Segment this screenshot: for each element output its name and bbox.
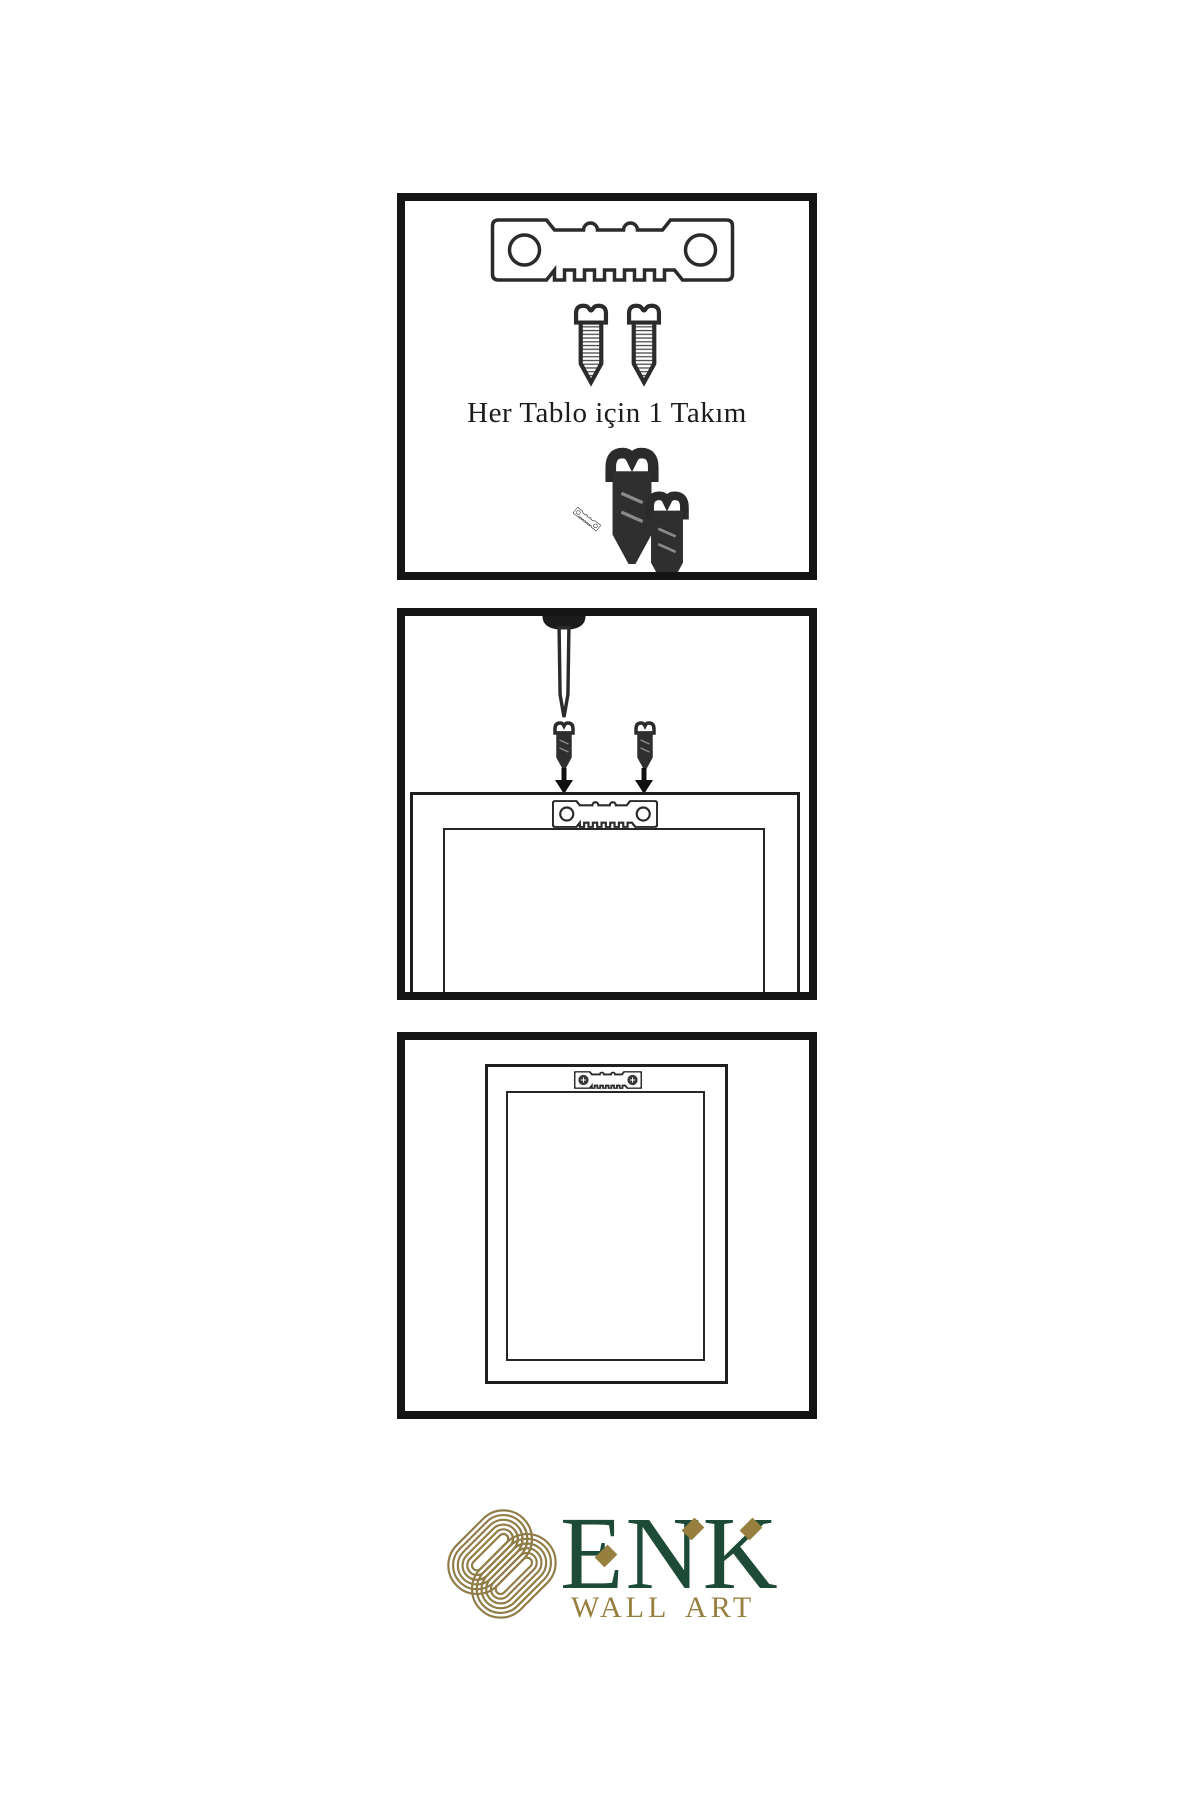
screw-icon: [572, 302, 610, 388]
step-3-panel: [397, 1032, 817, 1419]
sawtooth-hanger-icon: [552, 800, 658, 828]
instruction-sheet: Her Tablo için 1 Takım: [0, 0, 1200, 1800]
sawtooth-hanger-icon: [490, 218, 735, 282]
step-2-panel: [397, 608, 817, 1000]
arrow-down-icon: [555, 768, 573, 794]
set-per-frame-caption: Her Tablo için 1 Takım: [405, 397, 809, 430]
screw-icon: [625, 302, 663, 388]
hung-frame-inner-edge: [506, 1091, 705, 1361]
screw-head-icon: [580, 1076, 587, 1083]
arrow-down-icon: [635, 768, 653, 794]
screw-icon: [634, 720, 656, 770]
logo-knot-icon: [437, 1498, 567, 1630]
mounted-hanger-with-screws-icon: [574, 1071, 642, 1089]
screw-icon: [553, 720, 575, 770]
frame-back-inner-edge: [443, 828, 765, 1000]
brand-tagline: WALL ART: [571, 1591, 755, 1625]
wall-nail-icon: [541, 616, 587, 722]
screw-head-icon: [629, 1076, 636, 1083]
step-1-panel: Her Tablo için 1 Takım: [397, 193, 817, 580]
screw-into-hanger-icon: [570, 446, 670, 564]
